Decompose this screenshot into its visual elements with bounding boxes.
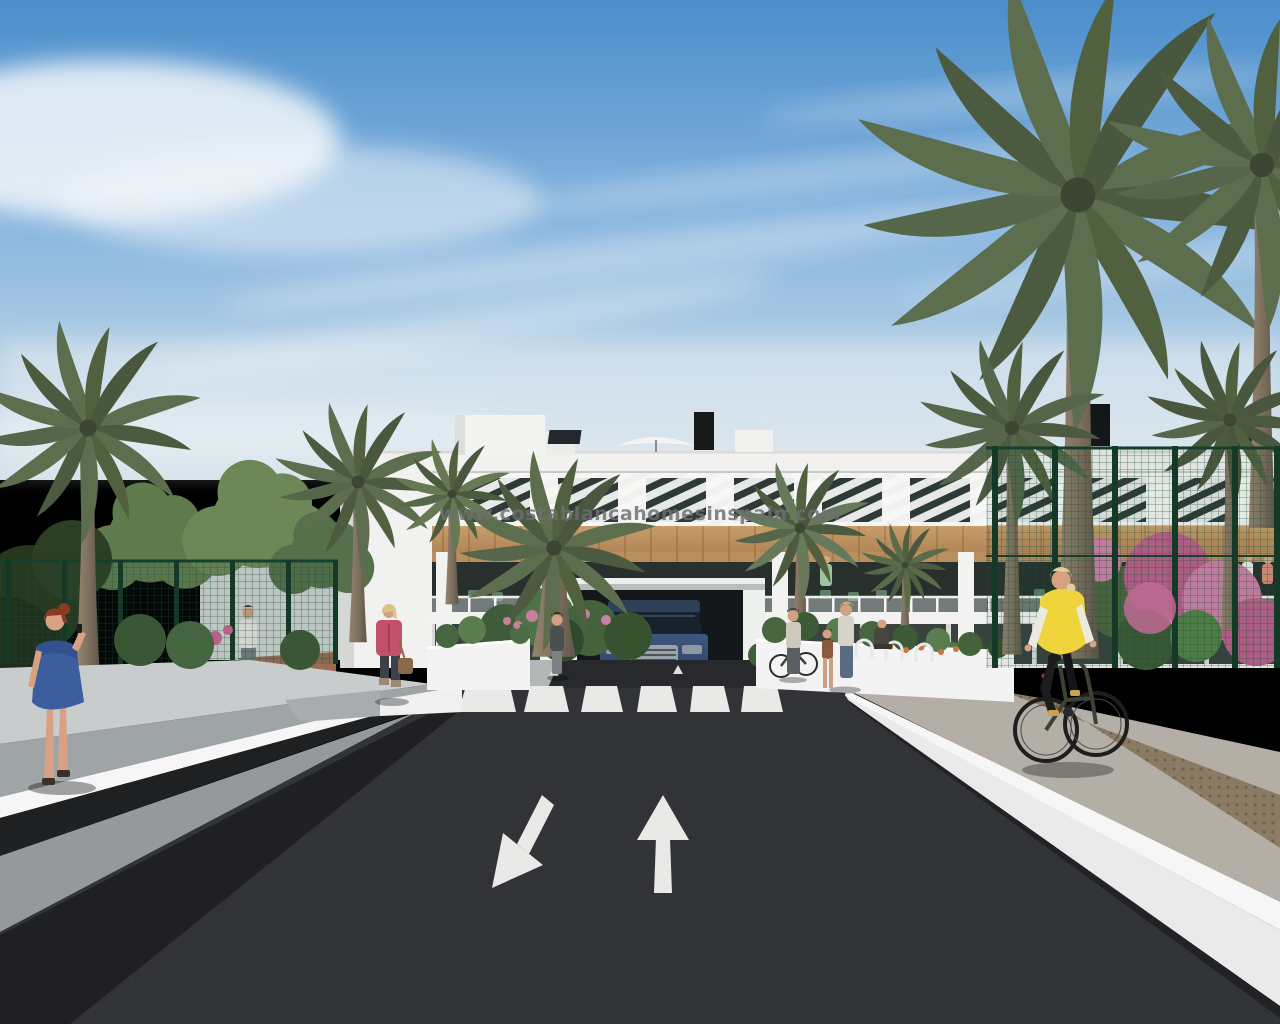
- ground: [0, 650, 1280, 1024]
- solar-panel: [548, 430, 582, 444]
- bougainvillea-front: [1124, 582, 1176, 634]
- chimney: [694, 412, 714, 450]
- watermark-text: www.costablancahomesinspain.com: [439, 503, 841, 525]
- planter-left: [427, 615, 530, 690]
- driveway: [548, 660, 772, 688]
- fence-right: [986, 446, 1280, 668]
- architectural-render-image: www.costablancahomesinspain.com: [0, 0, 1280, 1024]
